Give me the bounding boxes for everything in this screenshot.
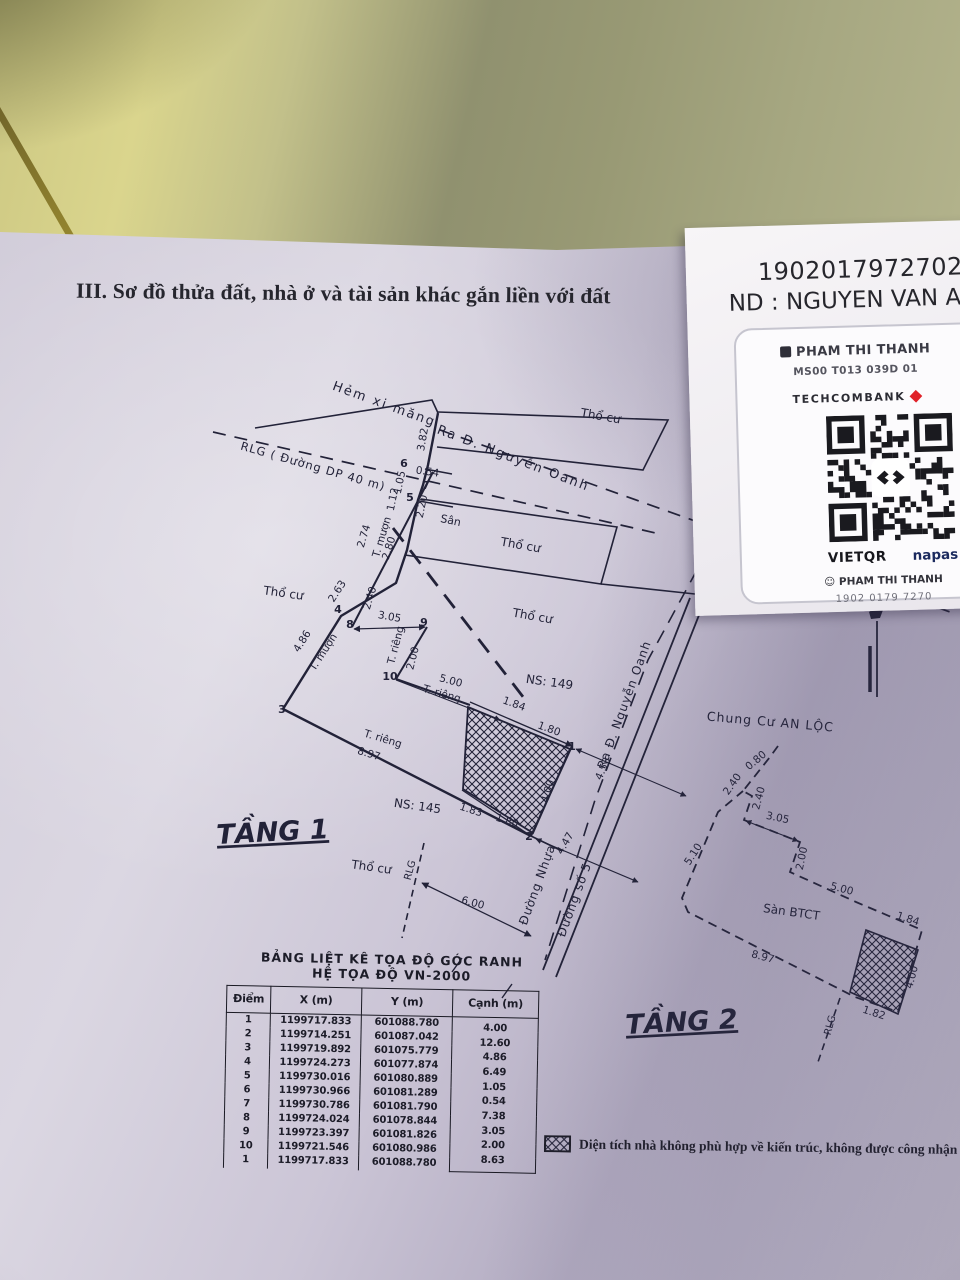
- edge-length-value: 3.05: [451, 1124, 536, 1140]
- bank-logo-icon: [780, 346, 791, 357]
- table-cell: 9: [224, 1125, 268, 1140]
- diagram-label: 8.97: [750, 948, 776, 966]
- diagram-label: 1.84: [895, 910, 921, 929]
- edge-length-value: 4.00: [453, 1021, 538, 1037]
- table-cell: 4: [225, 1055, 269, 1070]
- diagram-label: 1.84: [501, 695, 527, 714]
- napas-logo: napas: [912, 547, 958, 564]
- diagram-label: 0.80: [743, 749, 769, 773]
- table-header-cell: X (m): [270, 986, 362, 1015]
- diagram-label: Sàn BTCT: [762, 901, 821, 923]
- diagram-label: TẦNG 1: [215, 809, 329, 851]
- diagram-label: 6: [400, 457, 408, 470]
- diagram-label: 8.97: [356, 745, 382, 763]
- diagram-label: Đường Nhựa: [516, 842, 558, 927]
- diagram-label: 2: [525, 830, 533, 843]
- diagram-label: 3: [278, 703, 286, 716]
- qr-holder-name: ☺ PHAM THI THANH: [742, 571, 960, 591]
- napas-center-logo-icon: [871, 458, 910, 497]
- diagram-label: 9: [420, 616, 428, 629]
- edge-length-value: 2.00: [450, 1138, 535, 1154]
- qr-brand-row: VIETQR napas: [828, 546, 960, 567]
- diagram-label: 0.54: [415, 464, 440, 479]
- table-cell: 1: [226, 1012, 270, 1027]
- edge-length-column: 4.0012.604.866.491.050.547.383.052.008.6…: [449, 1017, 538, 1174]
- diagram-label: Thổ cư: [262, 583, 306, 603]
- diagram-label: RLG: [823, 1014, 839, 1036]
- edge-length-value: 6.49: [452, 1065, 537, 1081]
- diagram-label: NS: 145: [393, 796, 442, 816]
- diagram-label: Ra Đ. Nguyễn Oanh: [435, 423, 592, 495]
- table-cell: 8: [224, 1111, 268, 1126]
- diagram-label: 2.40: [361, 585, 379, 611]
- diagram-label: 6.00: [460, 894, 486, 912]
- diagram-label: 4.86: [291, 628, 314, 654]
- diagram-label: Đường số 5: [554, 860, 594, 938]
- bank-name: TECHCOMBANK: [737, 388, 960, 408]
- section-title: III. Sơ đồ thửa đất, nhà ở và tài sản kh…: [76, 279, 716, 311]
- edge-length-value: 12.60: [452, 1036, 537, 1052]
- edge-length-value: 7.38: [451, 1109, 536, 1125]
- table-cell: 5: [225, 1069, 269, 1084]
- diagram-label: 3.82: [415, 427, 431, 452]
- account-number: 19020179727023: [758, 252, 960, 286]
- diagram-label: 1: [568, 740, 576, 753]
- card-ms-line: MS00 T013 039D 01: [737, 361, 960, 380]
- diagram-label: 4: [334, 603, 342, 616]
- diagram-label: 2.20: [414, 494, 431, 519]
- diagram-label: 1.12: [385, 487, 402, 512]
- diagram-label: 2.63: [326, 578, 349, 604]
- diagram-label: 2.00: [404, 645, 421, 671]
- diagram-label: 5.00: [829, 880, 855, 898]
- diagram-label: Thổ cư: [579, 405, 623, 426]
- legend: Diện tích nhà không phù hợp về kiến trúc…: [544, 1135, 957, 1158]
- table-cell: 2: [226, 1027, 270, 1042]
- table-cell: 1: [223, 1153, 267, 1168]
- boundary-coordinates-table: ĐiểmX (m)Y (m)Cạnh (m) 11199717.83360108…: [223, 985, 539, 1174]
- diagram-label: 4.47: [554, 830, 576, 856]
- diagram-label: 3.05: [377, 609, 402, 625]
- diagram-label: 5: [406, 491, 414, 504]
- techcombank-logo-icon: [910, 390, 923, 403]
- diagram-label: 5.10: [682, 841, 705, 867]
- table-header-cell: Điểm: [226, 985, 271, 1013]
- diagram-label: 8: [346, 618, 354, 631]
- diagram-label: T. riêng: [385, 625, 407, 667]
- diagram-label: 3.05: [765, 810, 790, 827]
- edge-length-value: 0.54: [451, 1094, 536, 1110]
- diagram-label: 10: [382, 670, 398, 683]
- vietqr-card: PHAM THI THANH MS00 T013 039D 01 TECHCOM…: [733, 322, 960, 605]
- table-header-cell: Cạnh (m): [452, 990, 539, 1019]
- card-holder-name: PHAM THI THANH: [736, 340, 960, 362]
- diagram-label: Chung Cư AN LỘC: [706, 708, 834, 734]
- table-cell: 7: [225, 1097, 269, 1112]
- table-cell: 6: [225, 1083, 269, 1098]
- diagram-label: Sân: [439, 512, 462, 529]
- photo-of-land-document: III. Sơ đồ thửa đất, nhà ở và tài sản kh…: [0, 0, 960, 1280]
- diagram-label: TẦNG 2: [624, 999, 738, 1041]
- diagram-label: Thổ cư: [499, 534, 543, 555]
- diagram-label: Thổ cư: [511, 605, 555, 626]
- qr-phone: 1902 0179 7270: [743, 589, 960, 608]
- edge-length-value: 1.05: [451, 1080, 536, 1096]
- table-cell: 3: [226, 1041, 270, 1056]
- edge-length-value: 4.86: [452, 1051, 537, 1067]
- diagram-label: Hẻm xi măng: [330, 379, 438, 430]
- diagram-label: Thổ cư: [350, 857, 394, 877]
- diagram-label: 2.40: [750, 785, 768, 811]
- qr-code: [826, 413, 955, 542]
- bank-qr-sticker: 19020179727023 ND : NGUYEN VAN A PHAM TH…: [685, 220, 960, 616]
- legend-note: Diện tích nhà không phù hợp về kiến trúc…: [579, 1136, 957, 1157]
- edge-length-value: 8.63: [450, 1153, 535, 1169]
- hatch-legend-icon: [544, 1135, 571, 1152]
- table-cell: 601088.780: [358, 1156, 449, 1172]
- diagram-label: 7: [422, 479, 430, 492]
- diagram-label: 1.83: [458, 801, 484, 820]
- holder-line: ND : NGUYEN VAN A: [728, 284, 960, 316]
- coordinate-table-block: BẢNG LIỆT KÊ TỌA ĐỘ GÓC RANH HỆ TỌA ĐỘ V…: [223, 949, 557, 1174]
- diagram-label: 2.74: [355, 523, 373, 549]
- table-cell: 10: [224, 1139, 268, 1154]
- diagram-label: 2.00: [794, 846, 811, 871]
- table-cell: 1199717.833: [267, 1154, 358, 1170]
- diagram-label: NS: 149: [525, 672, 574, 692]
- vietqr-logo: VIETQR: [828, 549, 887, 567]
- table-header-cell: Y (m): [361, 988, 453, 1017]
- north-arrow-icon: [869, 608, 883, 697]
